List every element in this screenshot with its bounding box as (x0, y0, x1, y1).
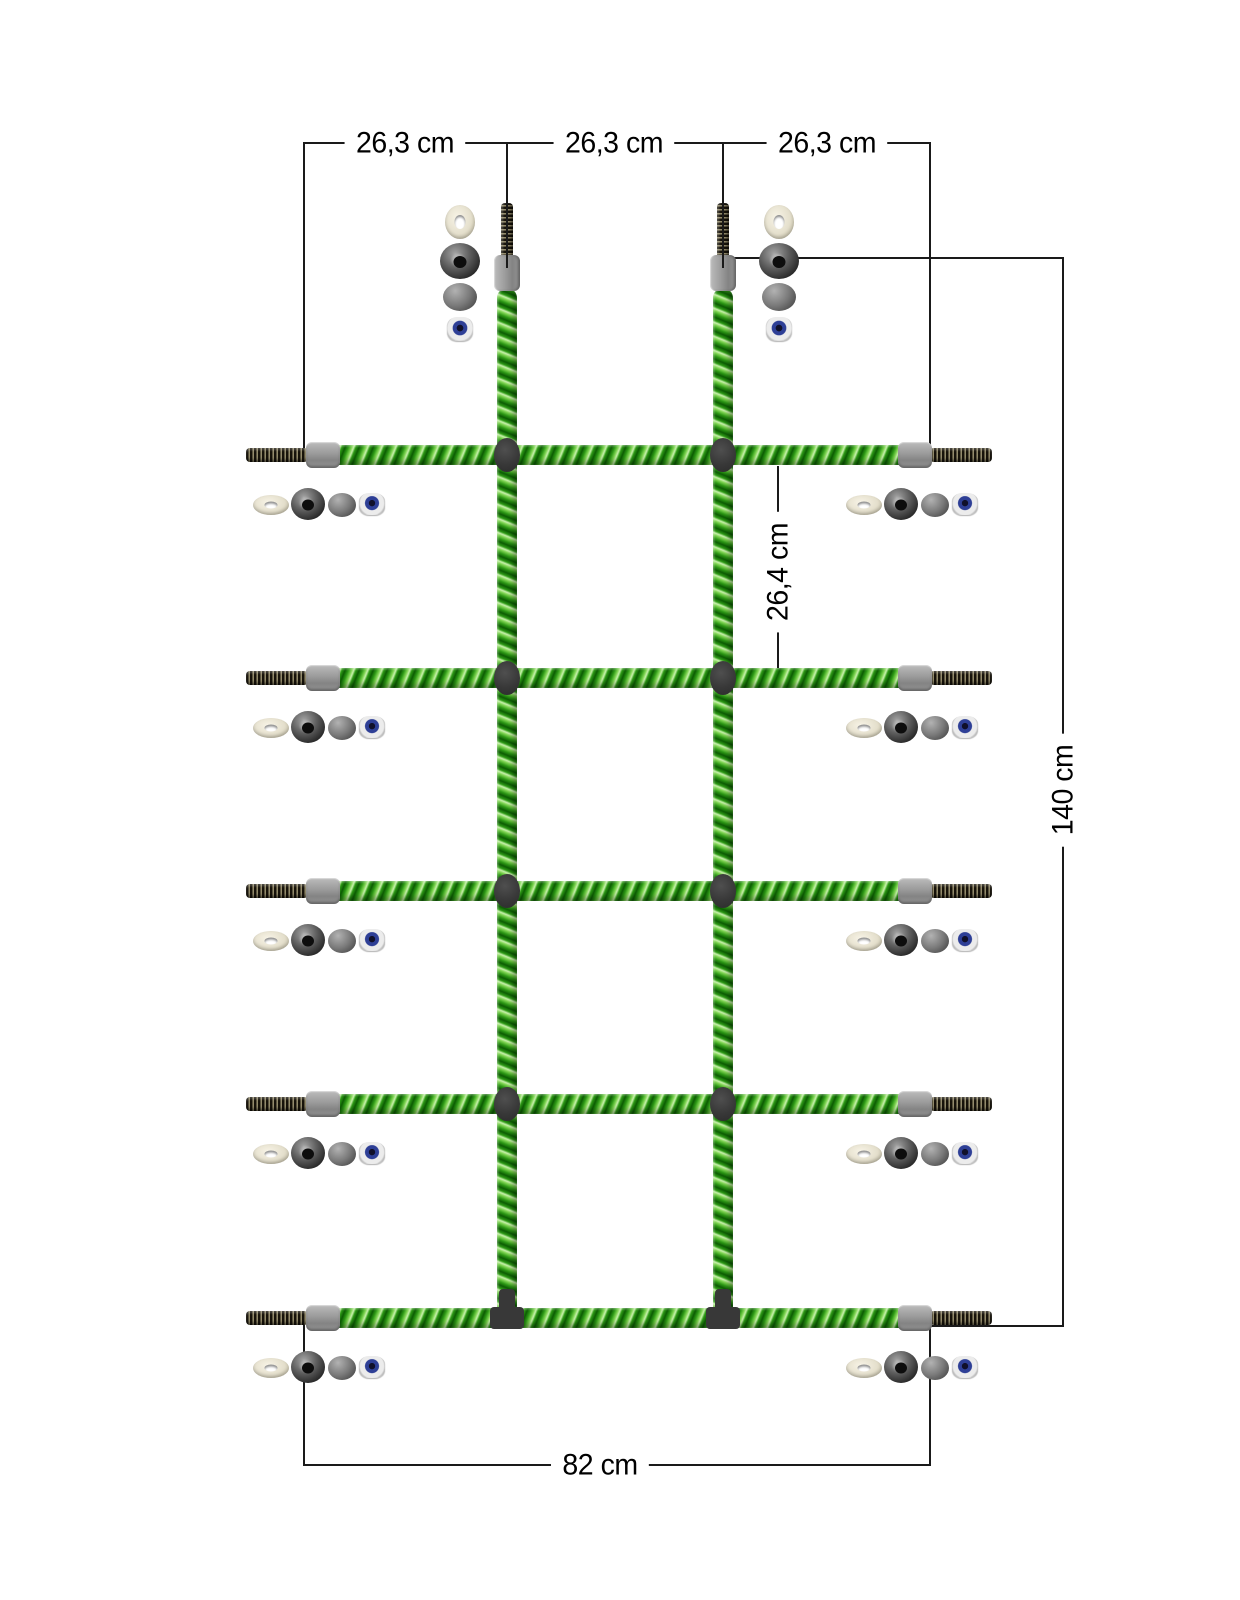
washer-right-row3-hole (858, 938, 871, 945)
dome-cap-top-left (443, 283, 477, 311)
cross-connector-left-row4 (494, 1087, 520, 1121)
dimension-label-total-height: 140 cm (1047, 733, 1080, 846)
dimension-label-total-width: 82 cm (551, 1449, 649, 1482)
rope-ferrule-right-row1 (898, 442, 932, 468)
dimension-label-row-gap: 26,4 cm (762, 512, 795, 633)
washer-left-row2-hole (265, 725, 278, 732)
washer-left-row5 (253, 1358, 289, 1378)
cap-nut-right-row4-hole (895, 1148, 907, 1159)
cap-nut-left-row3 (291, 924, 325, 956)
washer-right-row4 (846, 1144, 882, 1164)
cap-nut-right-row2 (884, 711, 918, 743)
rope-ferrule-right-row4 (898, 1091, 932, 1117)
lock-nut-top-left (447, 317, 473, 341)
cross-connector-left-row1 (494, 438, 520, 472)
cap-nut-left-row4 (291, 1137, 325, 1169)
dome-cap-right-row5 (921, 1356, 949, 1380)
cap-nut-right-row5 (884, 1351, 918, 1383)
lock-nut-right-row3 (952, 929, 978, 951)
cap-nut-right-row4 (884, 1137, 918, 1169)
lock-nut-left-row3 (359, 929, 385, 951)
lock-nut-top-right (766, 317, 792, 341)
cap-nut-top-left (440, 243, 480, 279)
cross-connector-right-row4 (710, 1087, 736, 1121)
dimension-label-top-middle: 26,3 cm (554, 127, 675, 160)
dome-cap-right-row4 (921, 1142, 949, 1166)
cross-connector-left-row3 (494, 874, 520, 908)
washer-right-row5-hole (858, 1365, 871, 1372)
threaded-rod-left-row5 (246, 1311, 308, 1325)
cap-nut-top-right (759, 243, 799, 279)
rope-ferrule-left-row5 (306, 1305, 340, 1331)
threaded-rod-left-row3 (246, 884, 308, 898)
dome-cap-left-row1 (328, 493, 356, 517)
cap-nut-left-row3-hole (302, 935, 314, 946)
dome-cap-left-row2 (328, 716, 356, 740)
dimension-tick-top-right-end (929, 142, 931, 454)
dimension-label-top-left: 26,3 cm (345, 127, 466, 160)
cap-nut-top-left-hole (454, 256, 467, 268)
cap-nut-left-row5 (291, 1351, 325, 1383)
washer-right-row2 (846, 718, 882, 738)
washer-left-row5-hole (265, 1365, 278, 1372)
dimension-tick-bottom-right (929, 1327, 931, 1466)
cap-nut-left-row1 (291, 488, 325, 520)
lock-nut-right-row1 (952, 493, 978, 515)
washer-left-row3-hole (265, 938, 278, 945)
washer-right-row5 (846, 1358, 882, 1378)
washer-top-right (764, 205, 794, 239)
cap-nut-top-right-hole (773, 256, 786, 268)
lock-nut-right-row5 (952, 1356, 978, 1378)
threaded-rod-left-row1 (246, 448, 308, 462)
cap-nut-left-row4-hole (302, 1148, 314, 1159)
dome-cap-right-row2 (921, 716, 949, 740)
threaded-rod-right-row2 (930, 671, 992, 685)
cap-nut-right-row1 (884, 488, 918, 520)
t-connector-base-right (706, 1307, 740, 1329)
dimension-tick-bottom-left (303, 1318, 305, 1466)
cap-nut-left-row2 (291, 711, 325, 743)
cross-connector-left-row2 (494, 661, 520, 695)
threaded-rod-right-row3 (930, 884, 992, 898)
washer-left-row1-hole (265, 502, 278, 509)
threaded-rod-right-row1 (930, 448, 992, 462)
rope-ferrule-left-row3 (306, 878, 340, 904)
washer-top-left (445, 205, 475, 239)
rope-horizontal-row4 (318, 1094, 922, 1114)
washer-right-row1-hole (858, 502, 871, 509)
threaded-rod-right-row4 (930, 1097, 992, 1111)
dome-cap-right-row3 (921, 929, 949, 953)
cap-nut-right-row3 (884, 924, 918, 956)
washer-top-right-hole (774, 215, 785, 229)
rope-ferrule-right-row5 (898, 1305, 932, 1331)
dimension-line-height-bottom (931, 1325, 1064, 1327)
dimension-tick-top-left-end (303, 142, 305, 454)
cross-connector-right-row1 (710, 438, 736, 472)
rope-ferrule-left-row2 (306, 665, 340, 691)
washer-top-left-hole (455, 215, 466, 229)
cap-nut-right-row5-hole (895, 1362, 907, 1373)
rope-ferrule-left-row1 (306, 442, 340, 468)
cross-connector-right-row2 (710, 661, 736, 695)
washer-left-row4 (253, 1144, 289, 1164)
dome-cap-left-row4 (328, 1142, 356, 1166)
rope-ferrule-left-row4 (306, 1091, 340, 1117)
lock-nut-right-row4 (952, 1142, 978, 1164)
washer-left-row2 (253, 718, 289, 738)
cross-connector-right-row3 (710, 874, 736, 908)
t-connector-base-left (490, 1307, 524, 1329)
rope-horizontal-row5 (318, 1308, 922, 1328)
washer-right-row1 (846, 495, 882, 515)
threaded-rod-right-row5 (930, 1311, 992, 1325)
cap-nut-left-row2-hole (302, 722, 314, 733)
dome-cap-left-row5 (328, 1356, 356, 1380)
cap-nut-right-row2-hole (895, 722, 907, 733)
dome-cap-top-right (762, 283, 796, 311)
rope-ferrule-right-row2 (898, 665, 932, 691)
lock-nut-left-row5 (359, 1356, 385, 1378)
dome-cap-left-row3 (328, 929, 356, 953)
washer-left-row3 (253, 931, 289, 951)
threaded-rod-left-row2 (246, 671, 308, 685)
washer-left-row4-hole (265, 1151, 278, 1158)
washer-right-row2-hole (858, 725, 871, 732)
dimension-label-top-right: 26,3 cm (767, 127, 888, 160)
washer-left-row1 (253, 495, 289, 515)
washer-right-row4-hole (858, 1151, 871, 1158)
lock-nut-left-row4 (359, 1142, 385, 1164)
cap-nut-right-row1-hole (895, 499, 907, 510)
washer-right-row3 (846, 931, 882, 951)
lock-nut-left-row2 (359, 716, 385, 738)
cap-nut-left-row1-hole (302, 499, 314, 510)
rope-horizontal-row1 (318, 445, 922, 465)
threaded-rod-left-row4 (246, 1097, 308, 1111)
lock-nut-left-row1 (359, 493, 385, 515)
rope-ferrule-right-row3 (898, 878, 932, 904)
rope-horizontal-row3 (318, 881, 922, 901)
lock-nut-right-row2 (952, 716, 978, 738)
dome-cap-right-row1 (921, 493, 949, 517)
cap-nut-left-row5-hole (302, 1362, 314, 1373)
dimension-tick-rope-left (506, 142, 508, 268)
rope-horizontal-row2 (318, 668, 922, 688)
climbing-net-diagram: 26,3 cm 26,3 cm 26,3 cm 26,4 cm 140 cm 8… (0, 0, 1240, 1600)
dimension-tick-rope-right (722, 142, 724, 268)
cap-nut-right-row3-hole (895, 935, 907, 946)
